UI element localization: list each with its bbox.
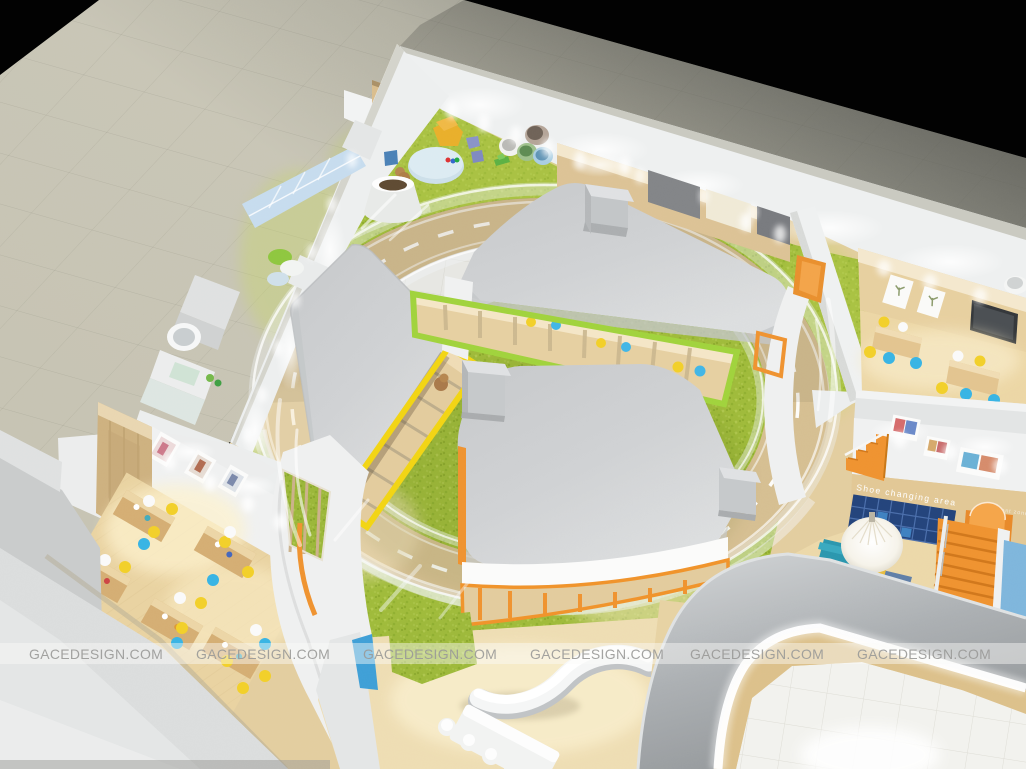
svg-text:GACEDESIGN.COM: GACEDESIGN.COM: [196, 646, 330, 662]
svg-text:GACEDESIGN.COM: GACEDESIGN.COM: [29, 646, 163, 662]
svg-text:GACEDESIGN.COM: GACEDESIGN.COM: [363, 646, 497, 662]
svg-text:GACEDESIGN.COM: GACEDESIGN.COM: [857, 646, 991, 662]
svg-text:GACEDESIGN.COM: GACEDESIGN.COM: [530, 646, 664, 662]
svg-text:GACEDESIGN.COM: GACEDESIGN.COM: [690, 646, 824, 662]
